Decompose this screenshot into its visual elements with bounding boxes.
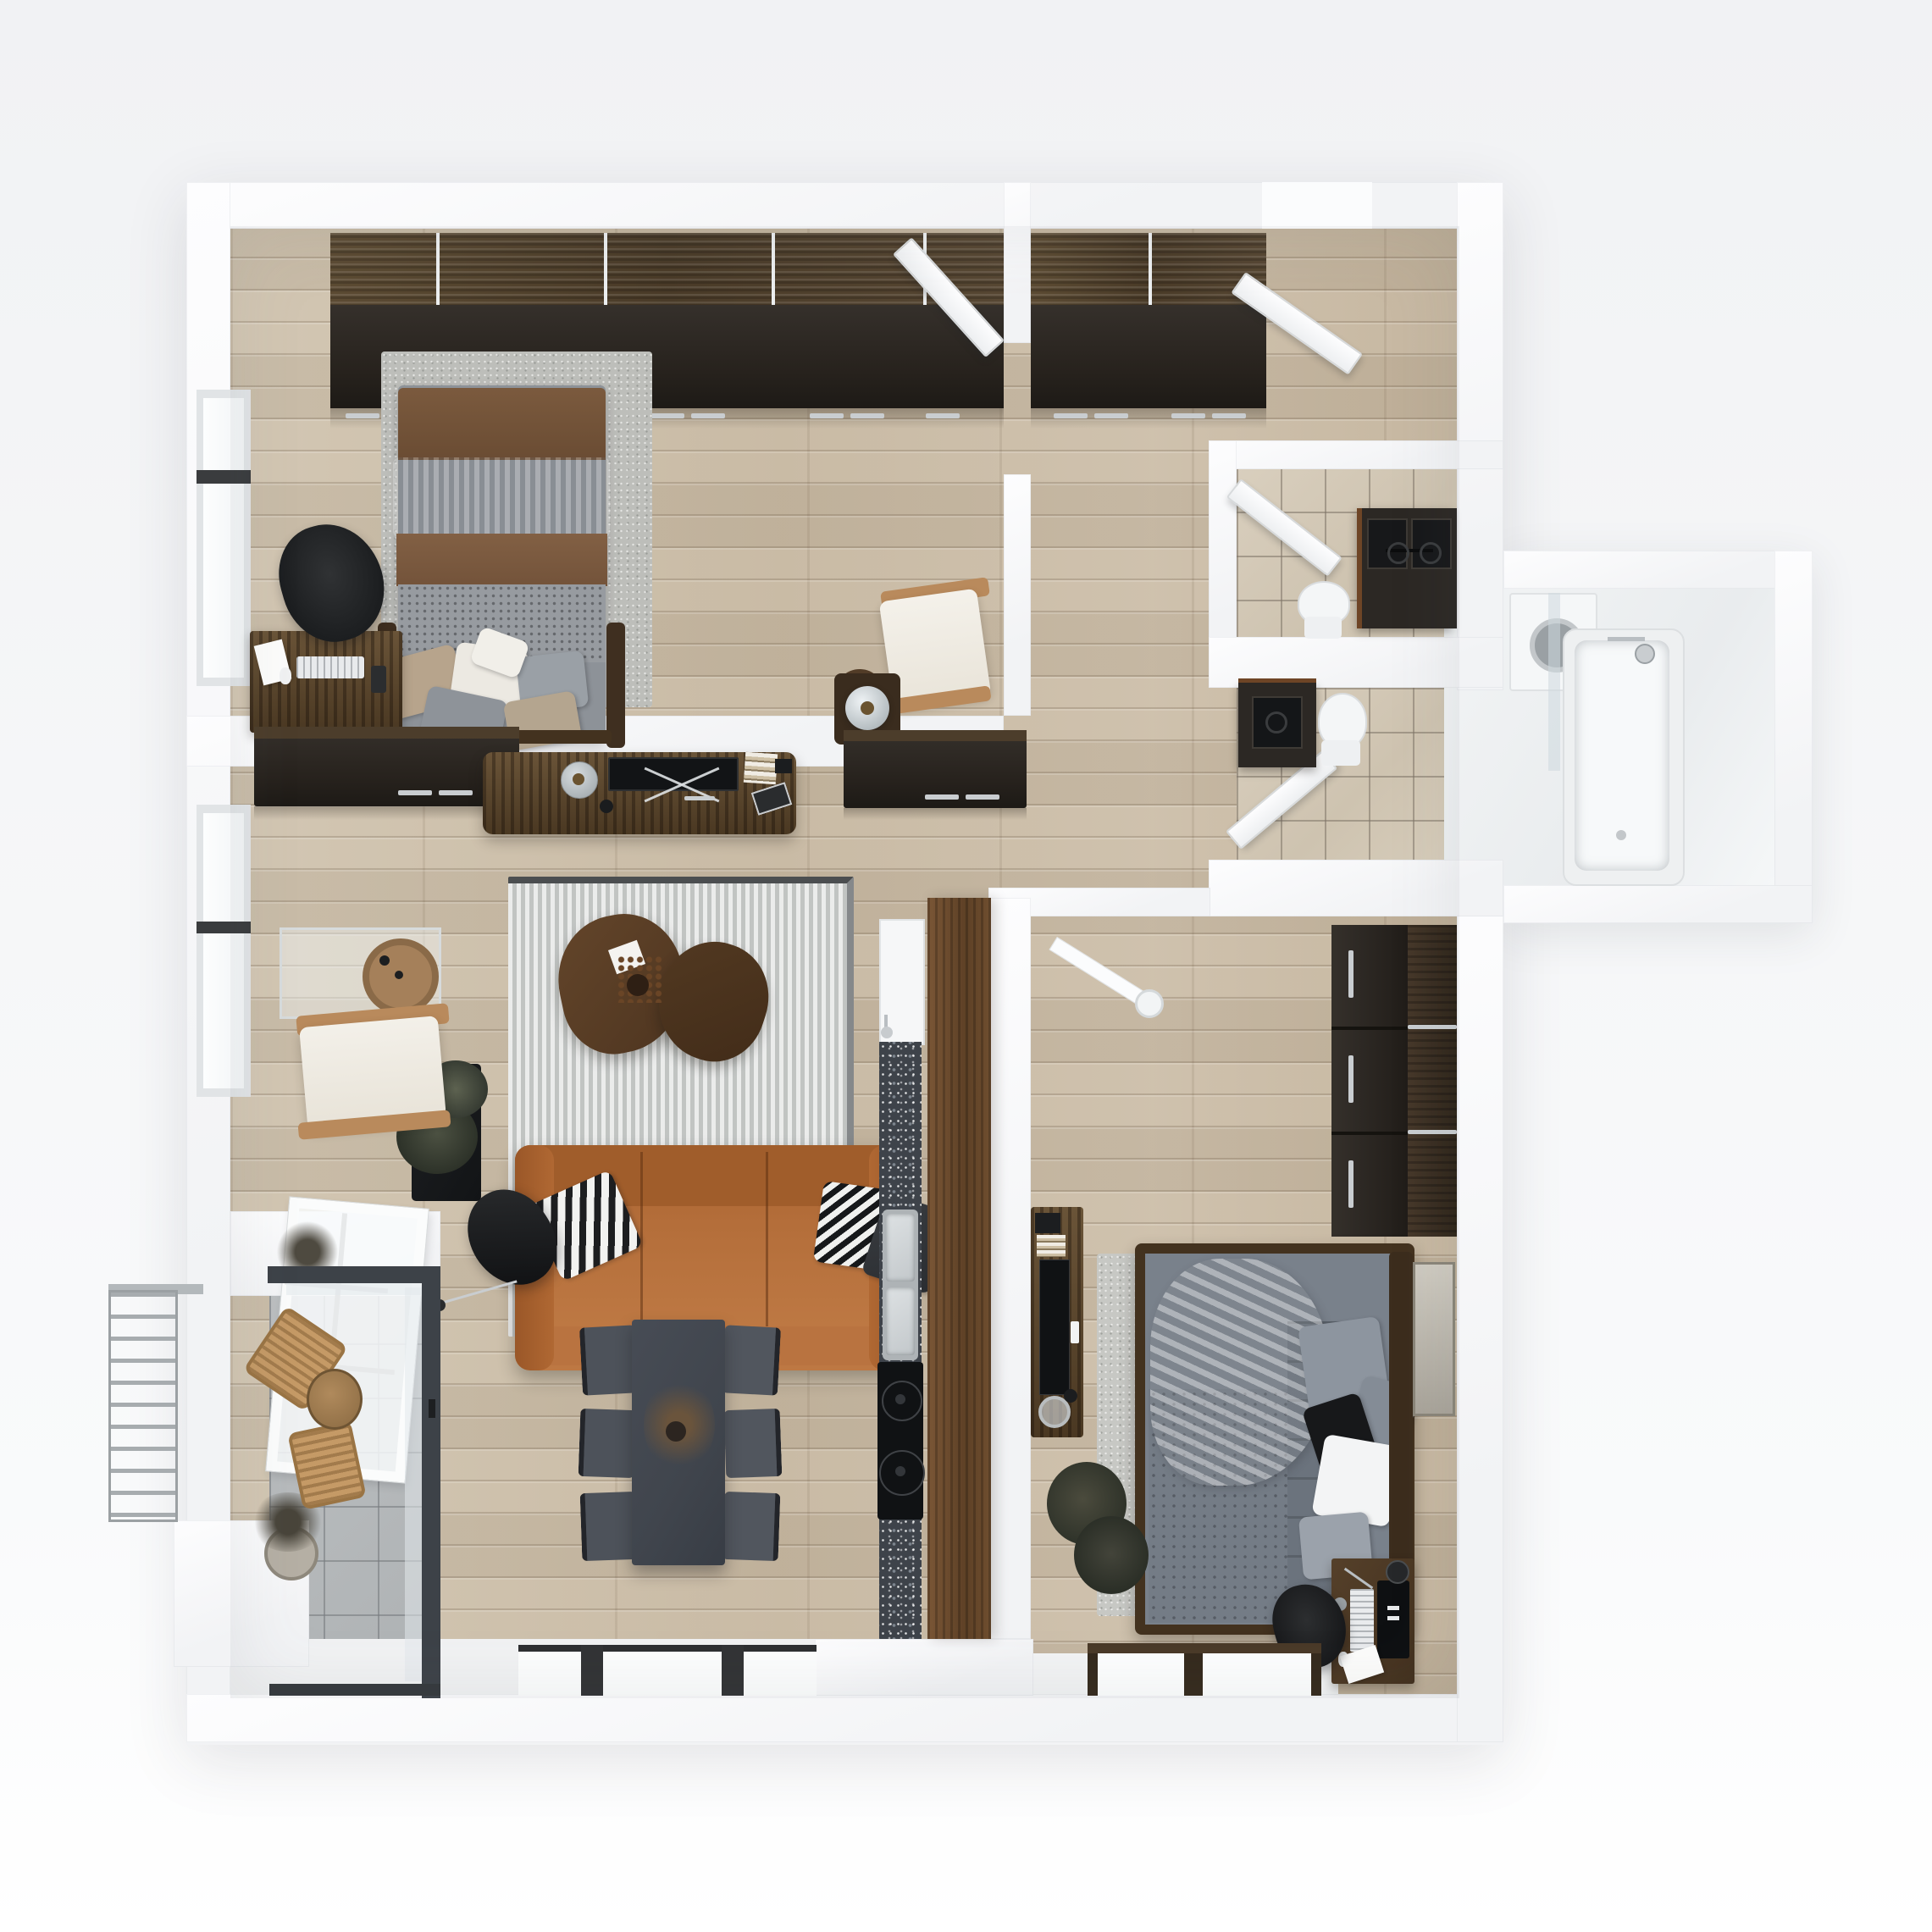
wardrobe1-handle (650, 413, 684, 418)
tray-candle (379, 955, 390, 966)
desk2-monitor-glyph (1387, 1606, 1399, 1610)
dining-chair (579, 1325, 639, 1395)
tub-drain (1616, 830, 1626, 840)
hall-wardrobe-handle (1094, 413, 1128, 418)
bedroom2-window-mullion (1311, 1653, 1321, 1696)
exterior-railing (108, 1290, 178, 1522)
bedroom2-ceiling-lamp-head (1135, 989, 1164, 1018)
wardrobe1-divider (772, 233, 775, 305)
balcony-round-table (307, 1369, 363, 1430)
cooktop-ring-center (895, 1466, 905, 1476)
hall-wardrobe-divider (1149, 233, 1152, 305)
console-handle (684, 796, 715, 800)
wardrobe1-divider (436, 233, 440, 305)
bed1-blanket-gray (393, 457, 610, 538)
wardrobe2-handle (1348, 1160, 1354, 1208)
dining-window-band (518, 1645, 817, 1696)
wardrobe1-handle (926, 413, 960, 418)
window-sash-living (197, 922, 251, 933)
bath-faucet-ring (1265, 711, 1287, 733)
wardrobe2-handle (1348, 1055, 1354, 1103)
kitchen-back-wall (990, 898, 1031, 1639)
wing-wall-top (1503, 551, 1813, 589)
kitchen-faucet-head (881, 1027, 893, 1038)
cabinet-right-shadow (844, 808, 1027, 820)
balcony-door-handle (429, 1399, 435, 1418)
balcony-glazing-glass (405, 1287, 422, 1681)
wing-wall-bottom (1503, 885, 1813, 923)
glass-dome-core (861, 701, 874, 715)
wc-wall-bottom (1209, 637, 1503, 688)
console-black-box (775, 759, 792, 773)
bedroom2-window-mullion (1184, 1653, 1203, 1696)
hall-wardrobe-handle (1171, 413, 1205, 418)
dining-centerpiece-vase (666, 1421, 686, 1442)
desk2-clock (1386, 1560, 1409, 1584)
wardrobe1-divider (604, 233, 607, 305)
cabinet-left-handle (439, 790, 473, 795)
cabinet-right-handle (925, 794, 959, 800)
bed1-rail-right (606, 623, 625, 748)
dining-window-mullion (581, 1645, 603, 1696)
kitchen-sink-basin (886, 1287, 915, 1355)
wardrobe2-divider (1331, 1132, 1408, 1135)
cabinet-left-shadow (254, 806, 519, 820)
console-books (744, 752, 778, 785)
living-cabinet-right-top (844, 730, 1027, 741)
wardrobe1-handle (691, 413, 725, 418)
shower-fixture-bar (1608, 637, 1645, 641)
hall-wardrobe-handle (1212, 413, 1246, 418)
wall-divider-lower (1004, 474, 1031, 716)
window-glass-bedroom1 (203, 398, 244, 678)
floor-plan-stage (0, 0, 1932, 1932)
sofa-seam (766, 1152, 768, 1331)
kitchen-sink-basin (886, 1214, 915, 1282)
bedroom2-plant (1074, 1516, 1149, 1594)
bedroom2-wardrobe-side (1408, 925, 1457, 1237)
balcony-glazing-top (268, 1266, 440, 1283)
wall-right-lower (1457, 885, 1503, 1742)
bedroom2-remote (1071, 1321, 1079, 1343)
cabinet-left-handle (398, 790, 432, 795)
dining-chair (724, 1409, 783, 1478)
wc-toilet-tank (1304, 617, 1342, 639)
wall-bottom (186, 1694, 1503, 1742)
desk1-phone (371, 666, 386, 693)
living-cabinet-left (254, 727, 519, 806)
dining-chair (578, 1409, 637, 1478)
bedroom2-wardrobe-drawers (1331, 925, 1408, 1237)
kitchen-partition-panel (927, 898, 991, 1639)
hall-wardrobe-front (1031, 305, 1266, 408)
living-cabinet-left-top (254, 727, 519, 739)
bedroom2-artwork (1413, 1262, 1455, 1416)
wc-wall-top (1209, 440, 1503, 469)
bench-black-box (1035, 1213, 1060, 1233)
wardrobe1-handle (850, 413, 884, 418)
dining-window-top-frame (518, 1645, 817, 1652)
bedroom2-window-band (1088, 1653, 1321, 1696)
balcony-glazing-right (422, 1266, 440, 1698)
coffee-table-vase (627, 974, 649, 996)
dining-window-mullion (722, 1645, 744, 1696)
wardrobe2-handle (1348, 950, 1354, 998)
wardrobe1-handle (346, 413, 379, 418)
wardrobe2-side-line (1408, 1025, 1457, 1029)
cabinet-right-handle (966, 794, 999, 800)
bedroom2-window-mullion (1088, 1653, 1098, 1696)
bedroom2-tv-flat (1039, 1259, 1070, 1395)
bed1-sheet-brown (396, 534, 607, 586)
hall-wardrobe-shadow (1031, 408, 1266, 429)
console-black-candle (600, 800, 613, 813)
wall-right-upper (1457, 182, 1503, 690)
bath-toilet-tank (1321, 740, 1360, 766)
entry-doorway (1262, 182, 1372, 229)
desk1-keyboard (296, 656, 364, 678)
balcony-glazing-bottom (269, 1684, 440, 1696)
hall-wardrobe-handle (1054, 413, 1088, 418)
wing-wall-right (1774, 551, 1813, 923)
bench-books (1037, 1235, 1066, 1257)
desk2-keyboard (1350, 1589, 1374, 1652)
balcony-glazing-glass-top (286, 1283, 422, 1295)
shower-fixture-head (1635, 644, 1655, 664)
dining-chair (580, 1492, 639, 1561)
bath-wall-bottom (1209, 860, 1503, 916)
shower-glass-screen (1548, 593, 1560, 771)
console-candle-core (573, 773, 584, 785)
desk2-monitor-glyph (1387, 1616, 1399, 1620)
bench-candle-black (1064, 1389, 1077, 1403)
wall-stub-bottom (815, 1639, 1033, 1696)
wc-faucet-ring (1387, 542, 1409, 564)
tray-candle (395, 971, 403, 979)
dining-chair (722, 1325, 781, 1395)
bed1-pillow-band-brown (398, 388, 606, 460)
dining-chair (722, 1492, 781, 1561)
window-glass-living (203, 813, 244, 1088)
desk1-mouse (280, 667, 291, 684)
window-sash-bedroom1 (197, 470, 251, 484)
wardrobe1-handle (810, 413, 844, 418)
cooktop-ring-center (895, 1394, 905, 1404)
wardrobe2-side-line (1408, 1130, 1457, 1134)
wardrobe2-divider (1331, 1027, 1408, 1030)
wall-divider-upper (1004, 182, 1031, 343)
wc-faucet-ring (1420, 542, 1442, 564)
